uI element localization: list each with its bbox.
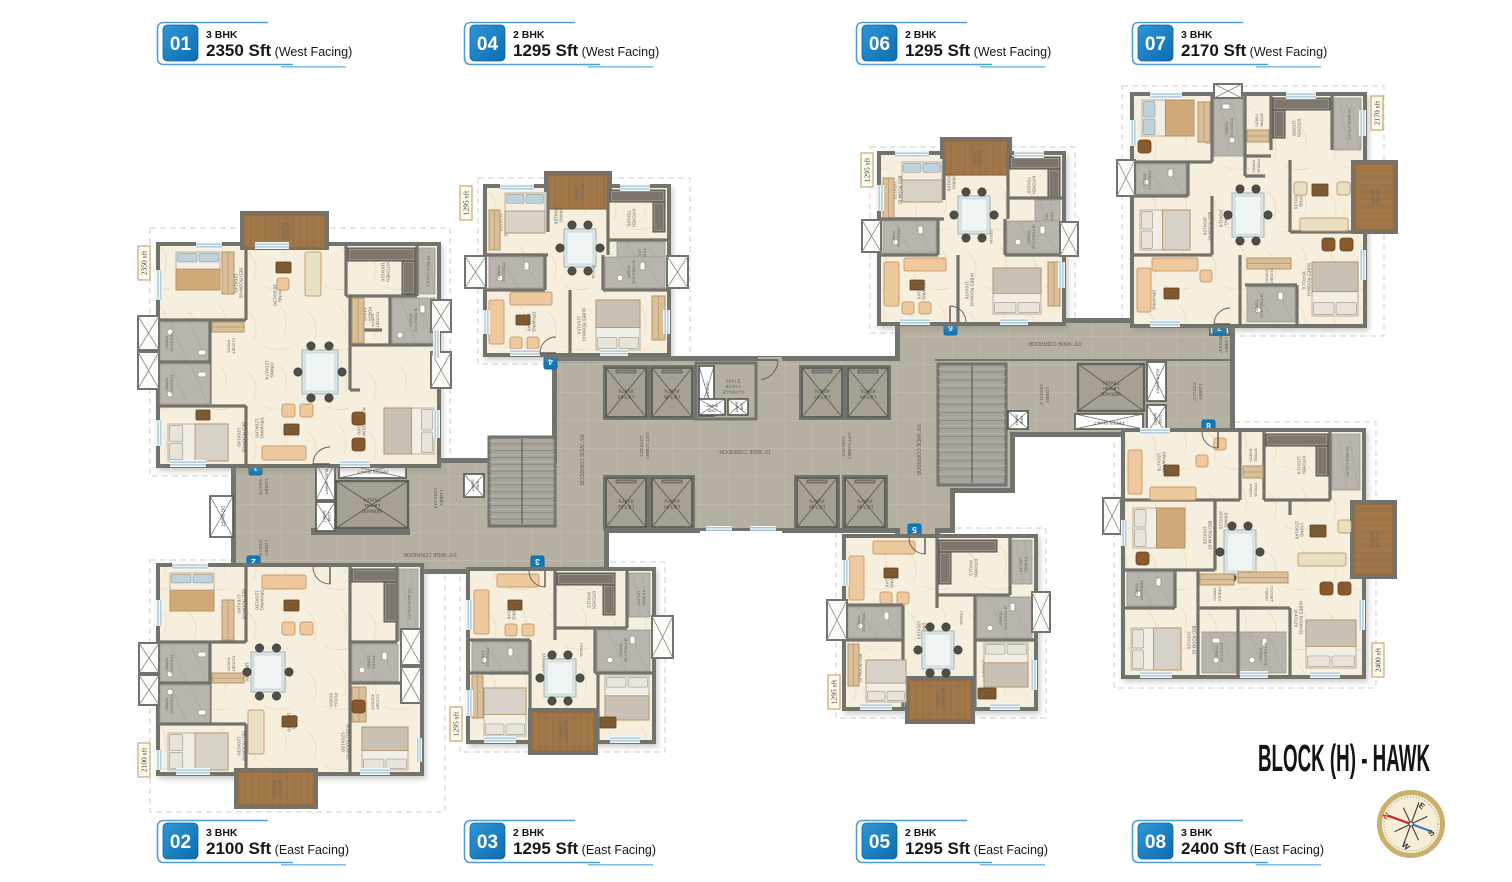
svg-text:10'6X10'4: 10'6X10'4: [432, 487, 438, 508]
svg-text:LIFT-02: LIFT-02: [618, 504, 634, 509]
svg-text:11'0X12'0: 11'0X12'0: [1202, 526, 1207, 545]
svg-text:4'6X5'0: 4'6X5'0: [1252, 159, 1257, 173]
svg-text:5'0X8'0: 5'0X8'0: [857, 615, 862, 629]
svg-text:7'6X11'6: 7'6X11'6: [1102, 380, 1120, 385]
svg-text:4'0 WIDE: 4'0 WIDE: [1023, 557, 1027, 573]
svg-text:15'4X11'0: 15'4X11'0: [1301, 271, 1306, 290]
svg-text:LIFT-07: LIFT-07: [814, 394, 830, 399]
svg-text:ELEC. SHAFT: ELEC. SHAFT: [325, 469, 330, 495]
svg-text:10'0X18'3: 10'0X18'3: [840, 435, 846, 456]
svg-text:2 BHK: 2 BHK: [513, 29, 545, 41]
svg-text:SHAFT: SHAFT: [471, 479, 475, 492]
svg-text:LIFT LOBBY: LIFT LOBBY: [644, 432, 650, 460]
svg-text:KITCHEN: KITCHEN: [386, 262, 391, 281]
svg-text:02: 02: [170, 832, 191, 853]
svg-text:12'0X11'9: 12'0X11'9: [1296, 456, 1301, 475]
svg-text:2100 sft: 2100 sft: [140, 747, 149, 772]
svg-text:4'10X9'6: 4'10X9'6: [371, 694, 376, 710]
svg-text:5'3X8'0: 5'3X8'0: [367, 655, 372, 669]
svg-text:5'0X9'8: 5'0X9'8: [574, 185, 579, 199]
svg-text:3'0 WIDE UTILITY: 3'0 WIDE UTILITY: [1347, 108, 1351, 140]
svg-text:SHAFT: SHAFT: [1015, 414, 1019, 427]
svg-text:5: 5: [912, 525, 917, 535]
svg-text:6'0X8'0: 6'0X8'0: [1259, 647, 1264, 661]
svg-text:7'6X9'0: 7'6X9'0: [1265, 587, 1270, 601]
svg-text:5'0X8'0: 5'0X8'0: [627, 265, 632, 279]
svg-text:12'0X16'0: 12'0X16'0: [254, 418, 259, 438]
svg-text:DG SHAFT: DG SHAFT: [221, 506, 226, 528]
svg-text:5'0X8'0: 5'0X8'0: [619, 643, 624, 657]
svg-text:12'0X13'0: 12'0X13'0: [254, 590, 259, 610]
svg-text:5'0X8'0: 5'0X8'0: [481, 650, 486, 664]
svg-text:LOBBY: LOBBY: [263, 479, 269, 496]
svg-text:4'4X5'0: 4'4X5'0: [1249, 483, 1254, 497]
svg-text:DRAWING: DRAWING: [260, 417, 265, 439]
svg-text:11'0X15'6: 11'0X15'6: [576, 316, 581, 335]
svg-text:COM: COM: [1158, 415, 1162, 424]
svg-text:2 BHK: 2 BHK: [905, 29, 937, 41]
svg-text:10'8X6'0: 10'8X6'0: [1370, 189, 1375, 206]
svg-text:POOJA: POOJA: [989, 230, 994, 244]
svg-text:9'0X9'2": 9'0X9'2": [1218, 337, 1223, 354]
svg-text:PRESS SHAFT: PRESS SHAFT: [357, 470, 388, 475]
svg-text:5'0X9'8: 5'0X9'8: [972, 151, 977, 165]
svg-text:LIFT-00: LIFT-00: [1103, 386, 1119, 391]
svg-text:8'2X7'6: 8'2X7'6: [857, 499, 872, 504]
svg-text:04: 04: [477, 34, 499, 55]
svg-text:13'0X10'0: 13'0X10'0: [946, 173, 951, 192]
svg-text:13'0X10'0: 13'0X10'0: [916, 621, 921, 640]
svg-text:8'2X7'6: 8'2X7'6: [618, 389, 633, 394]
svg-text:3 BHK: 3 BHK: [1181, 29, 1213, 41]
svg-text:10'6X11'1": 10'6X11'1": [1038, 384, 1044, 407]
svg-text:LIFT-03: LIFT-03: [618, 394, 634, 399]
svg-text:9'0X11'1": 9'0X11'1": [1191, 382, 1197, 402]
svg-text:9'0X7'6: 9'0X7'6: [257, 479, 263, 495]
svg-text:5'0X8'0: 5'0X8'0: [165, 697, 170, 711]
svg-text:LIFT-05: LIFT-05: [664, 394, 680, 399]
svg-text:LOBBY: LOBBY: [1224, 337, 1229, 352]
svg-text:CWS: CWS: [707, 408, 716, 412]
svg-text:5'0X5'0: 5'0X5'0: [328, 693, 333, 707]
svg-text:7'6X11'6: 7'6X11'6: [363, 497, 381, 502]
svg-text:5'0X9'0: 5'0X9'0: [1265, 269, 1270, 283]
svg-text:10'0X11'0: 10'0X11'0: [380, 263, 385, 282]
svg-text:5'0X9'8: 5'0X9'8: [935, 691, 940, 705]
svg-text:4: 4: [548, 357, 553, 367]
svg-text:12'0X13'0: 12'0X13'0: [236, 736, 241, 756]
svg-text:LIFT-04: LIFT-04: [664, 504, 680, 509]
svg-text:5'0X9'8: 5'0X9'8: [558, 723, 563, 737]
svg-text:16'4X12'0: 16'4X12'0: [1218, 511, 1223, 530]
svg-text:PRESS SHAFT: PRESS SHAFT: [1093, 421, 1124, 426]
svg-text:6'6" WIDE CORRIDOR: 6'6" WIDE CORRIDOR: [403, 551, 457, 557]
svg-text:06: 06: [869, 34, 890, 55]
svg-text:SIT-OUT: SIT-OUT: [286, 222, 291, 240]
svg-text:9'0X11'2: 9'0X11'2: [968, 560, 973, 576]
svg-text:DRAWING: DRAWING: [260, 589, 265, 611]
svg-text:DINING: DINING: [270, 362, 275, 378]
svg-text:1295 sft: 1295 sft: [462, 190, 471, 215]
svg-text:10' WIDE CORRIDOR: 10' WIDE CORRIDOR: [719, 448, 771, 454]
svg-text:2 BHK: 2 BHK: [905, 827, 937, 839]
svg-text:LOBBY: LOBBY: [438, 490, 444, 507]
svg-text:5'0 WIDE UTILITY: 5'0 WIDE UTILITY: [1345, 446, 1349, 478]
svg-text:LIFT-08: LIFT-08: [857, 504, 873, 509]
svg-text:4'0 WIDE UTILITY: 4'0 WIDE UTILITY: [426, 255, 430, 287]
svg-text:M.BED ROOM-01: M.BED ROOM-01: [346, 724, 351, 760]
svg-text:7'0X10'0: 7'0X10'0: [626, 210, 631, 227]
svg-text:11'0X14'0: 11'0X14'0: [236, 595, 241, 614]
svg-text:8'0X6'0: 8'0X6'0: [409, 313, 414, 327]
svg-text:5'0X8'0: 5'0X8'0: [1027, 230, 1032, 244]
svg-text:OUT-DOT: OUT-DOT: [706, 382, 711, 401]
svg-text:SHAFT: SHAFT: [322, 510, 326, 523]
svg-text:5'0X12'0: 5'0X12'0: [272, 780, 277, 797]
svg-text:6'4X3'6: 6'4X3'6: [227, 657, 232, 671]
svg-text:11'0X8'0: 11'0X8'0: [1291, 120, 1296, 136]
svg-text:POOJA: POOJA: [959, 611, 964, 625]
svg-text:07: 07: [1145, 34, 1166, 55]
svg-text:LOBBY: LOBBY: [1197, 384, 1203, 401]
svg-text:2170 sft: 2170 sft: [1373, 100, 1382, 125]
svg-text:08: 08: [1145, 832, 1166, 853]
svg-text:8'2X7'6: 8'2X7'6: [618, 499, 633, 504]
svg-text:8'0X5'0: 8'0X5'0: [1249, 448, 1254, 462]
svg-text:5'0X8'0: 5'0X8'0: [999, 611, 1004, 625]
svg-text:9'0X3'4: 9'0X3'4: [371, 313, 376, 327]
svg-text:SHAFT: SHAFT: [1153, 413, 1157, 426]
svg-text:01: 01: [170, 34, 192, 55]
svg-text:SIT-OUT: SIT-OUT: [278, 779, 283, 797]
svg-text:5'6X8'0: 5'6X8'0: [1255, 299, 1260, 313]
svg-text:SERVICE: SERVICE: [362, 509, 382, 514]
svg-text:SHAFT: SHAFT: [705, 404, 718, 408]
svg-text:12'0X13'0: 12'0X13'0: [340, 732, 345, 752]
svg-text:LOBBY: LOBBY: [263, 540, 269, 557]
svg-text:10'0X12'0: 10'0X12'0: [1202, 217, 1207, 236]
svg-text:FIRE: FIRE: [475, 481, 479, 490]
svg-text:12'0X17'0: 12'0X17'0: [1156, 453, 1161, 472]
svg-text:6'0X8'0: 6'0X8'0: [165, 335, 170, 349]
svg-text:SERVICE: SERVICE: [1101, 392, 1121, 397]
svg-text:BED ROOM-03: BED ROOM-03: [242, 589, 247, 620]
svg-text:03: 03: [477, 832, 498, 853]
svg-text:13'0X10'0: 13'0X10'0: [553, 206, 558, 225]
svg-text:POOJA: POOJA: [579, 643, 584, 657]
svg-text:6'6" WIDE CORRIDOR: 6'6" WIDE CORRIDOR: [1028, 340, 1082, 346]
svg-text:9'0X7'6: 9'0X7'6: [257, 540, 263, 556]
svg-text:BED ROOM-02: BED ROOM-02: [242, 731, 247, 762]
svg-text:3'6X5'0: 3'6X5'0: [1213, 587, 1218, 601]
svg-text:2400 sft: 2400 sft: [1374, 647, 1383, 672]
svg-text:1295 sft: 1295 sft: [452, 711, 461, 736]
svg-text:FAN: FAN: [739, 404, 743, 411]
svg-text:3: 3: [535, 557, 540, 567]
svg-text:UTILITY: UTILITY: [637, 591, 641, 606]
svg-text:LIFT LOBBY: LIFT LOBBY: [846, 432, 852, 460]
svg-text:UTILITY: UTILITY: [1019, 558, 1023, 573]
svg-text:1295 sft: 1295 sft: [863, 157, 872, 182]
svg-text:5'0X8'0: 5'0X8'0: [1135, 583, 1140, 597]
svg-text:5'0X8'0: 5'0X8'0: [892, 230, 897, 244]
svg-text:7'6X5'0: 7'6X5'0: [1255, 113, 1260, 127]
svg-text:2 BHK: 2 BHK: [513, 827, 545, 839]
svg-text:10'0X18'3: 10'0X18'3: [638, 435, 644, 456]
svg-text:8'2X7'6: 8'2X7'6: [809, 499, 824, 504]
svg-text:5'7X8'0: 5'7X8'0: [725, 379, 740, 384]
svg-text:8'2X7'6: 8'2X7'6: [814, 389, 829, 394]
svg-text:8'2X7'6: 8'2X7'6: [860, 389, 875, 394]
svg-text:1295 sft: 1295 sft: [830, 679, 839, 704]
svg-text:GARBAGE: GARBAGE: [722, 389, 744, 394]
svg-text:5'0X8'0: 5'0X8'0: [165, 657, 170, 671]
svg-text:LIFT-01: LIFT-01: [364, 503, 380, 508]
svg-text:BLOCK (H) - HAWK: BLOCK (H) - HAWK: [1258, 738, 1430, 780]
svg-text:BED ROOM-02: BED ROOM-02: [239, 268, 244, 299]
svg-text:4'0 WIDE UTILITY: 4'0 WIDE UTILITY: [407, 588, 411, 620]
svg-text:LOBBY: LOBBY: [1044, 387, 1050, 404]
svg-text:POOJA: POOJA: [591, 265, 596, 279]
svg-text:ELEC.SHAFT: ELEC.SHAFT: [1156, 369, 1161, 394]
svg-text:5'0X8'0: 5'0X8'0: [1215, 645, 1220, 659]
svg-text:3 BHK: 3 BHK: [206, 827, 238, 839]
svg-text:5'0X8'0: 5'0X8'0: [1225, 121, 1230, 135]
svg-text:3 BHK: 3 BHK: [1181, 827, 1213, 839]
svg-text:05: 05: [869, 832, 891, 853]
svg-text:3 BHK: 3 BHK: [206, 29, 238, 41]
svg-text:4'0 WIDE: 4'0 WIDE: [641, 590, 645, 606]
svg-text:12'0X17'4: 12'0X17'4: [264, 360, 269, 380]
svg-text:9'0X11'2: 9'0X11'2: [586, 592, 591, 608]
svg-text:11'0X12'0: 11'0X12'0: [1186, 631, 1191, 650]
svg-text:12'0X14'0: 12'0X14'0: [1294, 521, 1299, 540]
svg-text:16'4X12'0: 16'4X12'0: [1293, 609, 1298, 628]
svg-text:SHAFT: SHAFT: [735, 401, 739, 414]
svg-text:5'0X8'0: 5'0X8'0: [1143, 173, 1148, 187]
svg-text:12'0X14'0: 12'0X14'0: [236, 427, 241, 447]
svg-text:LIFT-09: LIFT-09: [860, 394, 876, 399]
svg-text:5'0X8'0: 5'0X8'0: [497, 265, 502, 279]
svg-text:8'2X7'6: 8'2X7'6: [664, 389, 679, 394]
svg-text:6'6" WIDE CORRIDOR: 6'6" WIDE CORRIDOR: [915, 424, 921, 476]
svg-text:FIRE: FIRE: [1019, 416, 1023, 425]
svg-text:CHUTE: CHUTE: [725, 384, 740, 389]
svg-text:11'0X6'0: 11'0X6'0: [1369, 532, 1374, 548]
svg-text:6'4X3'6: 6'4X3'6: [227, 339, 232, 353]
svg-text:15'0X11'0: 15'0X11'0: [1218, 209, 1223, 228]
svg-text:BED ROOM-03: BED ROOM-03: [242, 422, 247, 453]
svg-text:6'0X12'0: 6'0X12'0: [280, 223, 285, 240]
svg-text:8'2X7'6: 8'2X7'6: [664, 499, 679, 504]
svg-text:11'0X15'6: 11'0X15'6: [964, 281, 969, 300]
svg-text:6'6" WIDE CORRIDOR: 6'6" WIDE CORRIDOR: [578, 434, 584, 486]
svg-text:6'0X8'0: 6'0X8'0: [165, 377, 170, 391]
svg-text:2350 sft: 2350 sft: [140, 250, 149, 275]
svg-text:COM: COM: [327, 512, 331, 521]
svg-text:7'0X10'0: 7'0X10'0: [1026, 177, 1031, 194]
svg-text:LIFT-06: LIFT-06: [809, 504, 825, 509]
